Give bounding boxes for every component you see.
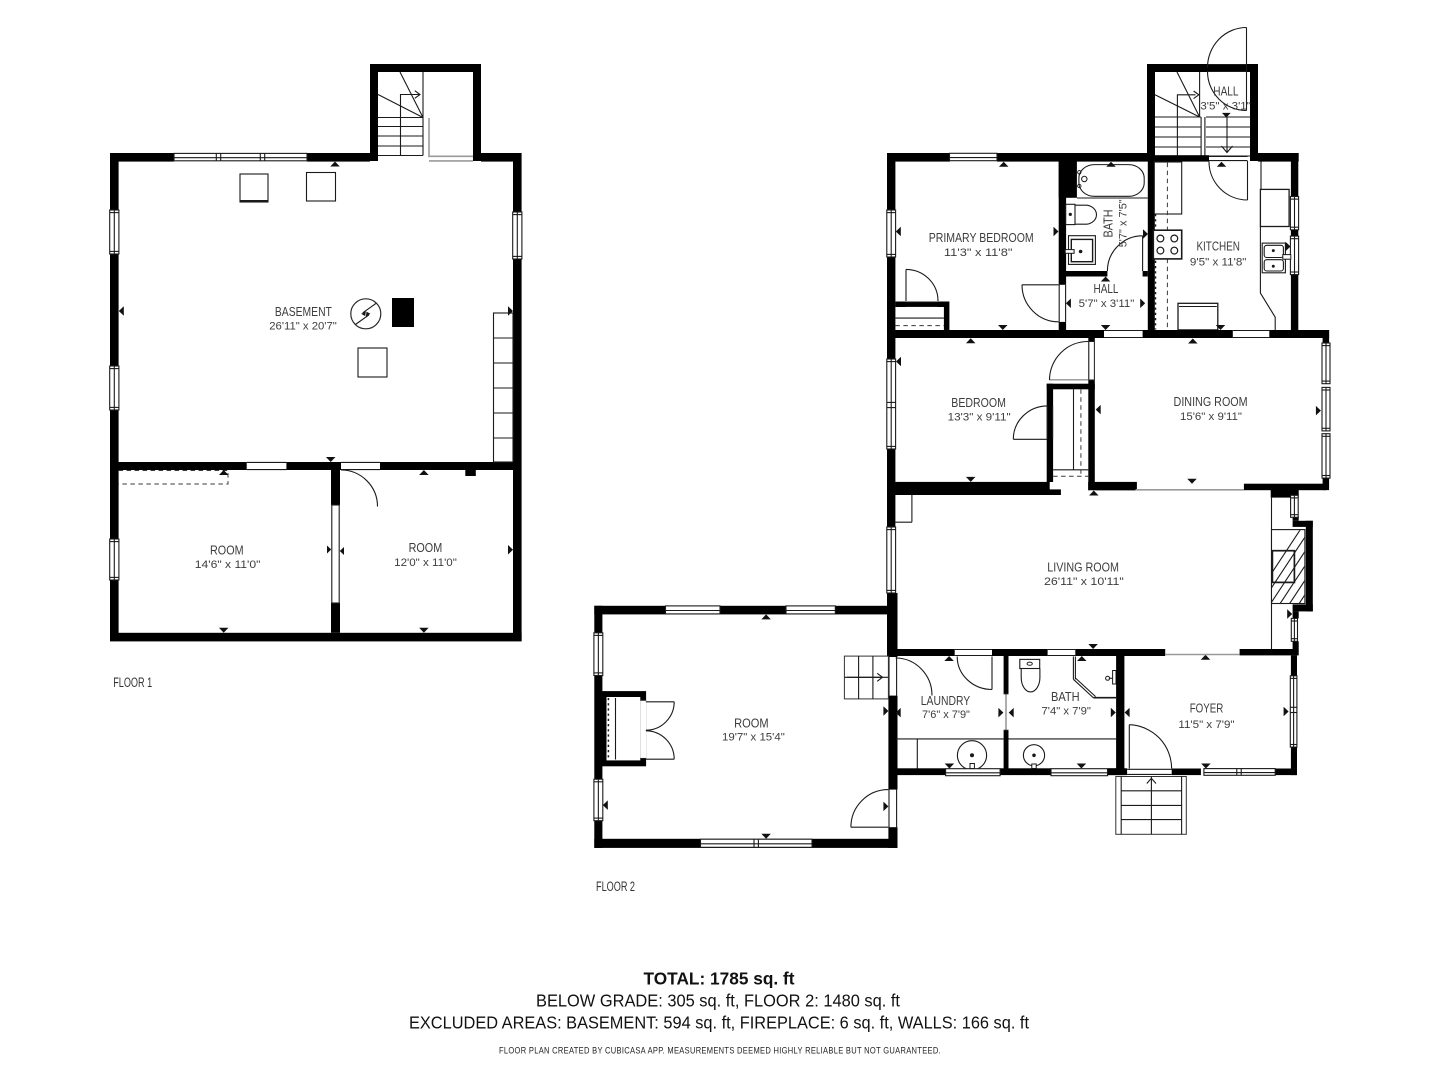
svg-text:FOYER: FOYER xyxy=(1190,702,1224,716)
svg-text:HALL: HALL xyxy=(1094,282,1119,296)
svg-text:BASEMENT: BASEMENT xyxy=(275,305,332,319)
svg-text:7'6" x 7'9": 7'6" x 7'9" xyxy=(922,709,970,721)
svg-text:13'3" x 9'11": 13'3" x 9'11" xyxy=(948,412,1011,424)
svg-text:3'5" x 3'1": 3'5" x 3'1" xyxy=(1200,100,1250,112)
svg-text:FLOOR 1: FLOOR 1 xyxy=(113,675,152,690)
svg-text:5'7" x 3'11": 5'7" x 3'11" xyxy=(1079,298,1135,310)
svg-text:DINING ROOM: DINING ROOM xyxy=(1174,395,1248,409)
svg-text:ROOM: ROOM xyxy=(210,543,244,557)
svg-text:FLOOR 2: FLOOR 2 xyxy=(596,879,635,894)
svg-text:LAUNDRY: LAUNDRY xyxy=(921,694,971,708)
svg-text:15'6" x 9'11": 15'6" x 9'11" xyxy=(1180,411,1242,423)
svg-text:26'11" x 20'7": 26'11" x 20'7" xyxy=(269,321,337,333)
svg-text:14'6" x 11'0": 14'6" x 11'0" xyxy=(195,559,261,571)
svg-text:PRIMARY BEDROOM: PRIMARY BEDROOM xyxy=(929,231,1034,245)
svg-text:KITCHEN: KITCHEN xyxy=(1196,240,1240,254)
svg-text:LIVING ROOM: LIVING ROOM xyxy=(1047,560,1119,574)
svg-text:11'5" x 7'9": 11'5" x 7'9" xyxy=(1178,719,1234,731)
svg-text:19'7" x 15'4": 19'7" x 15'4" xyxy=(722,731,785,743)
svg-text:11'3" x 11'8": 11'3" x 11'8" xyxy=(944,247,1013,259)
svg-text:BEDROOM: BEDROOM xyxy=(951,396,1006,410)
svg-text:9'5" x 11'8": 9'5" x 11'8" xyxy=(1190,256,1247,268)
svg-text:BATH: BATH xyxy=(1051,690,1080,704)
svg-text:ROOM: ROOM xyxy=(734,716,769,730)
svg-text:BELOW GRADE: 305 sq. ft, FLOOR: BELOW GRADE: 305 sq. ft, FLOOR 2: 1480 s… xyxy=(536,991,900,1011)
svg-text:FLOOR PLAN CREATED BY CUBICASA: FLOOR PLAN CREATED BY CUBICASA APP. MEAS… xyxy=(499,1046,941,1057)
svg-text:EXCLUDED AREAS: BASEMENT: 594: EXCLUDED AREAS: BASEMENT: 594 sq. ft, FI… xyxy=(409,1013,1029,1033)
svg-text:12'0" x 11'0": 12'0" x 11'0" xyxy=(394,557,457,569)
svg-text:26'11" x 10'11": 26'11" x 10'11" xyxy=(1044,576,1124,588)
svg-text:HALL: HALL xyxy=(1213,85,1238,99)
svg-text:TOTAL: 1785 sq. ft: TOTAL: 1785 sq. ft xyxy=(644,969,795,989)
svg-text:ROOM: ROOM xyxy=(409,541,443,555)
svg-text:BATH: BATH xyxy=(1102,210,1116,238)
svg-text:7'4" x 7'9": 7'4" x 7'9" xyxy=(1042,706,1091,718)
svg-text:5'7" x 7'5": 5'7" x 7'5" xyxy=(1118,199,1130,247)
